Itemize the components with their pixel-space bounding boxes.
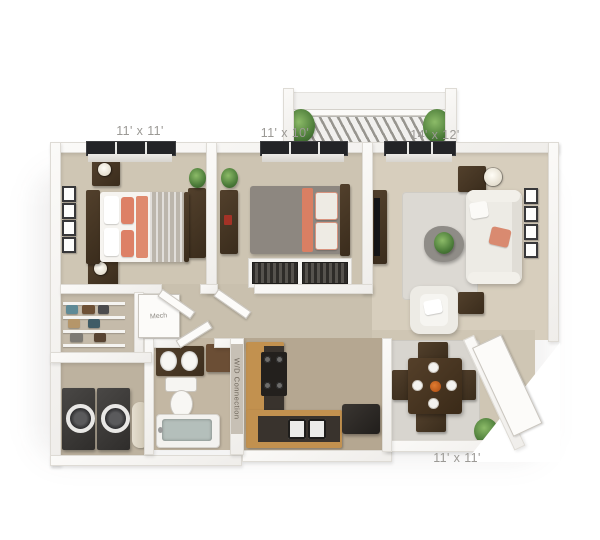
- hallway-wall: [254, 284, 373, 294]
- window-sill: [386, 154, 452, 162]
- bedroom-1-wall-art: [62, 203, 76, 219]
- stove-burner: [264, 382, 271, 389]
- dresser-decor: [224, 215, 232, 225]
- living-room-dimension-label: 14' x 12': [390, 128, 480, 142]
- side-table: [458, 166, 486, 192]
- bed-throw: [136, 196, 148, 258]
- refrigerator: [342, 404, 380, 434]
- bed-pillow: [315, 222, 338, 250]
- kitchen-sink: [308, 419, 326, 439]
- hanging-clothes: [88, 319, 100, 328]
- hallway-wall: [60, 284, 162, 294]
- bed-1-footboard: [184, 192, 189, 262]
- sofa-armrest: [468, 190, 520, 202]
- bedroom-1-dimension-label: 11' x 11': [95, 124, 185, 138]
- floor-lamp: [484, 168, 502, 186]
- hanging-clothes: [70, 333, 83, 342]
- laundry-wall-top: [50, 352, 152, 363]
- sofa-back-cushion: [512, 194, 522, 280]
- hanging-clothes: [68, 319, 80, 328]
- stove-burner: [276, 382, 283, 389]
- living-room-wall-art: [524, 206, 538, 222]
- bed-2-headboard: [340, 184, 350, 256]
- bed-1-headboard: [86, 190, 100, 264]
- side-table: [458, 292, 484, 314]
- bed-knit-blanket: [150, 192, 186, 262]
- dining-room-dimension-label: 11' x 11': [412, 451, 502, 465]
- vanity-sink: [160, 351, 177, 371]
- place-setting: [429, 399, 438, 408]
- dryer-door: [101, 404, 130, 433]
- balcony-rail-top: [293, 109, 447, 116]
- window-sill: [262, 154, 344, 162]
- toilet-tank: [166, 378, 196, 391]
- bedroom-2-dimension-label: 11' x 10': [240, 126, 330, 140]
- outer-wall-bottom: [50, 455, 242, 466]
- kitchen-wall-right: [382, 338, 392, 452]
- living-room-wall-art: [524, 224, 538, 240]
- wd-connection-face: W/D Connection: [231, 344, 243, 434]
- hanging-clothes: [98, 305, 109, 314]
- place-setting: [447, 381, 456, 390]
- potted-plant: [189, 168, 206, 188]
- wd-connection-label: W/D Connection: [233, 358, 242, 420]
- coffee-table-plant: [434, 232, 454, 254]
- bathtub-basin: [162, 419, 212, 441]
- window-sill: [88, 154, 172, 162]
- vanity-sink: [181, 351, 198, 371]
- washer-door: [66, 404, 95, 433]
- wall-bedroom1-bedroom2: [206, 142, 217, 294]
- tub-faucet: [158, 427, 163, 433]
- place-setting: [413, 381, 422, 390]
- dresser: [188, 188, 206, 258]
- outer-wall-left: [50, 142, 61, 466]
- bedroom-1-wall-art: [62, 220, 76, 236]
- outer-wall-right: [548, 142, 559, 342]
- table-lamp: [98, 163, 111, 176]
- tv: [374, 198, 380, 256]
- wall-bedroom2-living: [362, 142, 373, 294]
- stove-burner: [276, 356, 283, 363]
- living-room-wall-art: [524, 242, 538, 258]
- accent-pillow: [121, 230, 134, 257]
- bathroom-cabinet: [206, 344, 232, 372]
- living-room-wall-art: [524, 188, 538, 204]
- centerpiece-bowl: [430, 381, 441, 392]
- bed-2-throw: [302, 188, 313, 252]
- hanging-clothes: [82, 305, 95, 314]
- accent-pillow: [121, 197, 134, 224]
- hanging-clothes: [66, 305, 78, 314]
- sofa-pillow-white: [469, 201, 489, 220]
- bedroom-1-wall-art: [62, 186, 76, 202]
- bed-pillow: [315, 192, 338, 220]
- bed-pillow: [104, 196, 119, 224]
- dining-chair: [416, 412, 446, 432]
- closet-shelf: [63, 344, 125, 347]
- bed-pillow: [104, 228, 119, 256]
- kitchen-sink: [288, 419, 306, 439]
- potted-plant: [221, 168, 238, 188]
- closet-sliding-door: [252, 262, 298, 284]
- stove-burner: [264, 356, 271, 363]
- outer-wall-bottom: [242, 450, 392, 462]
- hanging-clothes: [94, 333, 106, 342]
- floor-plan: Mech W/D Connection 11' x 11' 11' x 10' …: [0, 0, 600, 540]
- sofa-armrest: [468, 272, 520, 284]
- place-setting: [429, 363, 438, 372]
- bedroom-1-wall-art: [62, 237, 76, 253]
- mech-closet-label: Mech: [150, 312, 168, 320]
- closet-sliding-door: [302, 262, 348, 284]
